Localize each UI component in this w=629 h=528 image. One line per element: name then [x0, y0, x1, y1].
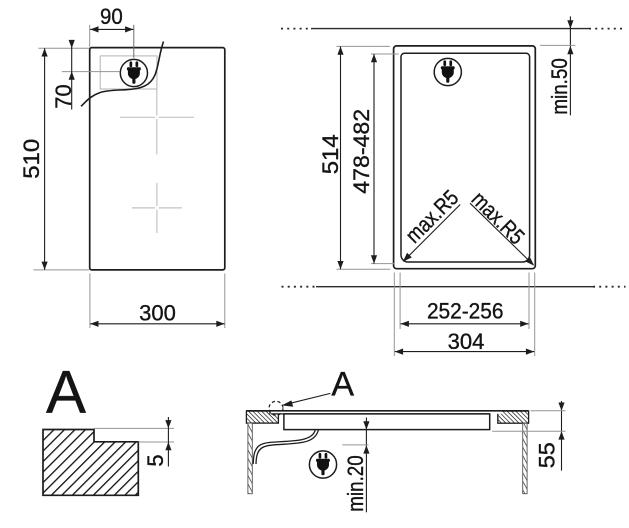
svg-text:A: A [46, 358, 86, 425]
svg-text:90: 90 [100, 4, 123, 29]
svg-text:304: 304 [448, 329, 485, 354]
svg-text:70: 70 [51, 84, 76, 108]
svg-text:min.20: min.20 [343, 455, 368, 512]
svg-text:min.50: min.50 [547, 58, 572, 115]
svg-text:300: 300 [139, 300, 176, 325]
svg-text:514: 514 [318, 134, 343, 174]
svg-text:A: A [331, 365, 354, 403]
svg-text:252-256: 252-256 [427, 299, 504, 324]
svg-text:5: 5 [143, 454, 168, 466]
svg-text:55: 55 [534, 442, 559, 468]
svg-text:510: 510 [19, 139, 44, 179]
svg-text:478-482: 478-482 [349, 109, 374, 194]
